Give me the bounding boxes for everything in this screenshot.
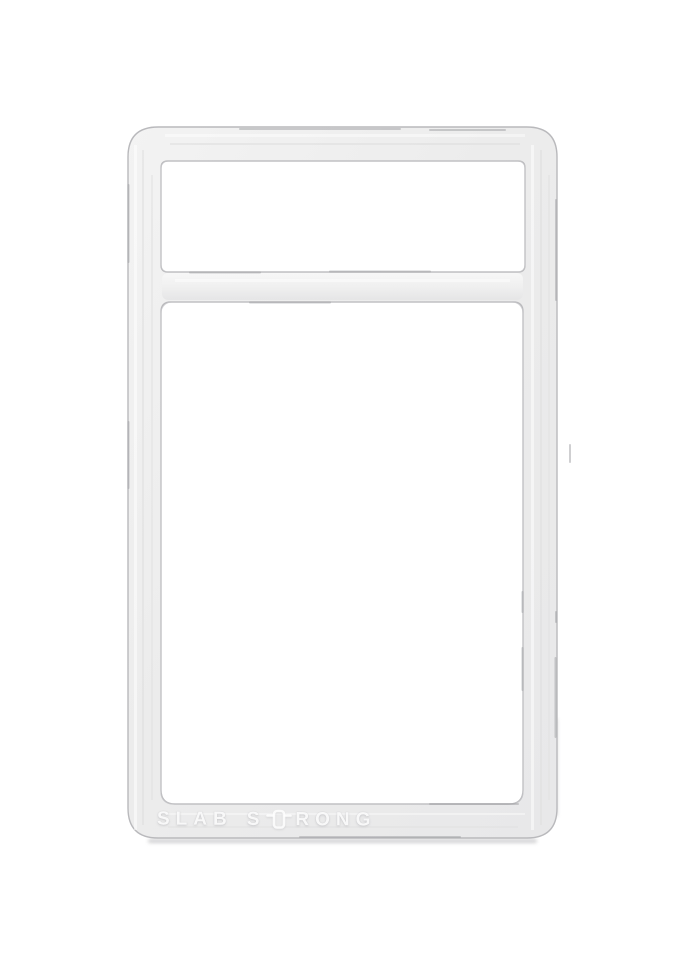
embossed-branding: SLAB S RONG xyxy=(157,807,377,834)
brand-word-strong: S RONG xyxy=(247,808,377,832)
card-window-outline xyxy=(161,302,523,804)
frame-body xyxy=(128,127,557,838)
slab-logo-icon xyxy=(266,808,292,829)
product-photo: SLAB S RONG xyxy=(0,0,695,960)
edge-accents xyxy=(129,129,571,837)
label-window-outline xyxy=(161,161,525,272)
surface-streaks xyxy=(134,134,550,830)
brand-letter-s: S xyxy=(247,809,266,831)
brand-word-slab: SLAB xyxy=(157,809,233,831)
brand-letters-rong: RONG xyxy=(295,809,376,831)
crossbar-highlight xyxy=(162,273,523,300)
